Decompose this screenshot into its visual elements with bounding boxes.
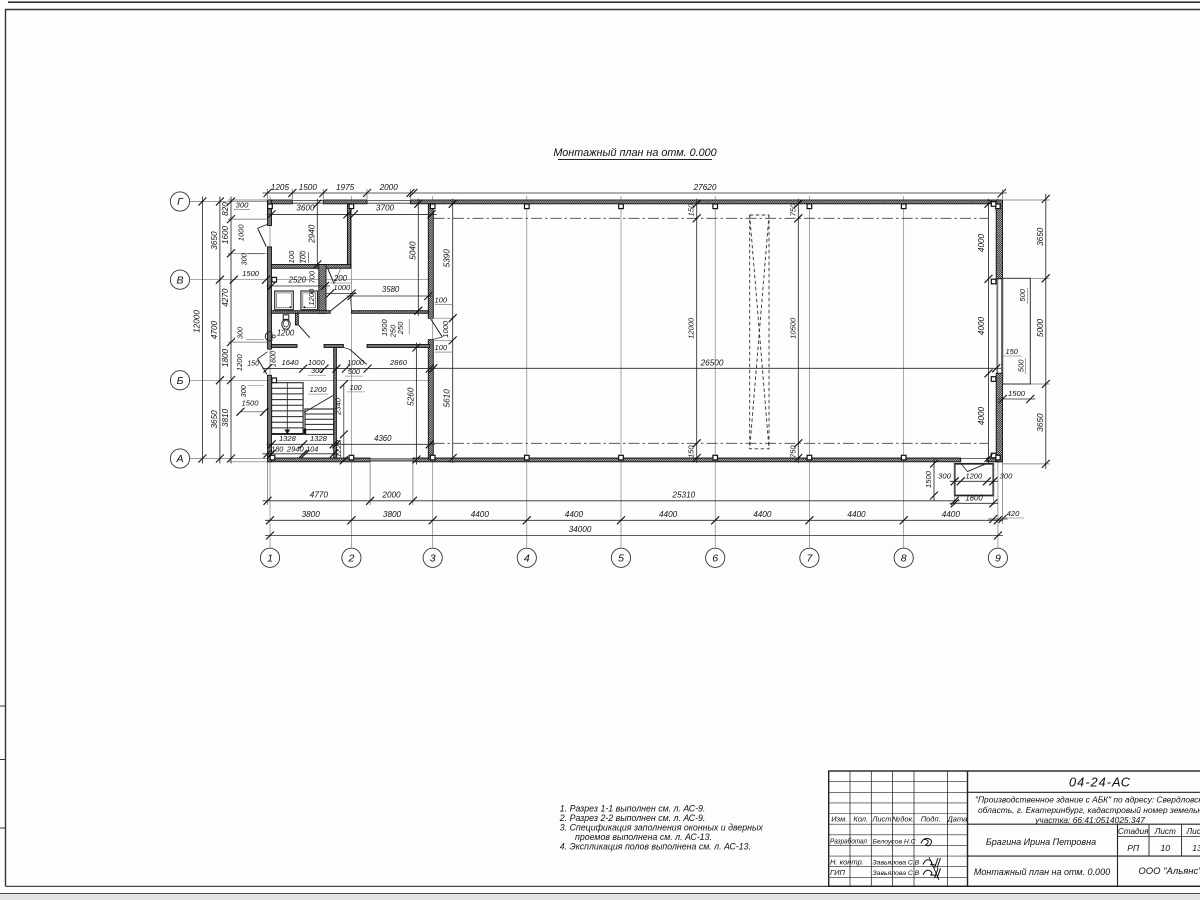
svg-text:200: 200 (333, 274, 348, 283)
svg-text:180: 180 (271, 444, 283, 453)
svg-text:420: 420 (1007, 509, 1020, 518)
svg-text:"Производственное здание с АБК: "Производственное здание с АБК" по адрес… (975, 795, 1200, 805)
svg-text:500: 500 (1018, 288, 1027, 301)
svg-text:4700: 4700 (210, 320, 219, 339)
svg-text:Лист: Лист (1185, 827, 1200, 836)
svg-text:750: 750 (788, 203, 797, 216)
svg-text:150: 150 (247, 358, 259, 367)
svg-text:Кол.: Кол. (853, 815, 868, 824)
svg-text:А: А (175, 453, 183, 465)
svg-text:4770: 4770 (310, 490, 329, 499)
svg-text:РП: РП (1127, 843, 1140, 853)
svg-text:6: 6 (712, 552, 718, 564)
svg-text:Завьялова С.В: Завьялова С.В (873, 860, 920, 867)
svg-text:300: 300 (938, 472, 951, 481)
svg-text:1500: 1500 (242, 398, 260, 407)
svg-text:34000: 34000 (569, 525, 592, 534)
svg-text:1800: 1800 (221, 348, 230, 367)
svg-text:300: 300 (239, 385, 248, 397)
svg-text:1500: 1500 (242, 269, 260, 278)
svg-text:1600: 1600 (269, 351, 278, 367)
svg-text:150: 150 (687, 445, 696, 458)
svg-text:4400: 4400 (565, 510, 584, 519)
svg-text:2940: 2940 (286, 444, 305, 453)
svg-text:Лист: Лист (871, 815, 891, 824)
svg-text:3650: 3650 (210, 231, 219, 250)
svg-text:10500: 10500 (788, 317, 797, 339)
svg-text:4000: 4000 (977, 406, 986, 425)
svg-text:№док.: №док. (892, 815, 914, 824)
svg-text:область, г. Екатеринбург, када: область, г. Екатеринбург, кадастровый но… (978, 805, 1200, 815)
svg-text:2. Разрез 2-2 выполнен см. л.: 2. Разрез 2-2 выполнен см. л. АС-9. (559, 813, 706, 823)
svg-text:4000: 4000 (977, 233, 986, 252)
svg-text:150: 150 (1005, 347, 1018, 356)
svg-text:3700: 3700 (376, 203, 395, 212)
svg-text:100: 100 (298, 250, 307, 263)
svg-text:4400: 4400 (659, 510, 678, 519)
svg-text:500: 500 (348, 367, 360, 376)
svg-text:ООО "Альянс": ООО "Альянс" (1138, 866, 1200, 877)
svg-text:Брагина Ирина Петровна: Брагина Ирина Петровна (986, 837, 1096, 847)
svg-text:Подп.: Подп. (921, 815, 941, 824)
svg-text:2000: 2000 (381, 490, 401, 499)
svg-text:3800: 3800 (383, 510, 402, 519)
svg-text:1800: 1800 (965, 494, 983, 503)
svg-text:1. Разрез 1-1 выполнен см. л.: 1. Разрез 1-1 выполнен см. л. АС-9. (560, 803, 706, 813)
svg-text:1640: 1640 (282, 358, 300, 367)
svg-text:Монтажный план на отм. 0.000: Монтажный план на отм. 0.000 (553, 147, 716, 159)
svg-text:Разработал: Разработал (830, 836, 868, 845)
svg-text:1200: 1200 (307, 288, 316, 306)
svg-text:3650: 3650 (210, 410, 219, 429)
svg-text:100: 100 (287, 250, 296, 263)
svg-text:1500: 1500 (1008, 389, 1026, 398)
svg-text:2: 2 (347, 552, 354, 564)
svg-text:100: 100 (350, 383, 362, 392)
svg-text:27620: 27620 (693, 183, 717, 192)
svg-text:5000: 5000 (1036, 318, 1045, 337)
svg-text:1975: 1975 (336, 183, 355, 192)
svg-text:1200: 1200 (965, 472, 983, 481)
svg-text:3650: 3650 (1036, 413, 1045, 432)
svg-text:3580: 3580 (382, 285, 400, 294)
svg-text:3: 3 (430, 552, 436, 564)
svg-text:Дата: Дата (947, 815, 968, 824)
svg-text:13: 13 (1192, 843, 1200, 853)
svg-text:Завьялова С.В: Завьялова С.В (873, 870, 920, 877)
svg-text:1200: 1200 (310, 385, 328, 394)
svg-text:5: 5 (618, 552, 624, 564)
svg-text:2860: 2860 (389, 358, 408, 367)
svg-text:4400: 4400 (753, 510, 772, 519)
svg-text:1328: 1328 (310, 434, 328, 443)
svg-text:300: 300 (239, 253, 248, 265)
svg-text:8: 8 (901, 552, 907, 564)
svg-text:Стадия: Стадия (1118, 827, 1149, 836)
svg-text:ГИП: ГИП (830, 868, 845, 877)
svg-text:300: 300 (236, 200, 249, 209)
svg-text:300: 300 (311, 366, 323, 375)
svg-text:4400: 4400 (942, 510, 961, 519)
svg-text:4: 4 (524, 552, 530, 564)
svg-text:1000: 1000 (347, 358, 365, 367)
svg-text:4400: 4400 (471, 510, 490, 519)
svg-text:700: 700 (308, 270, 317, 283)
svg-text:3600: 3600 (296, 203, 315, 212)
svg-text:1328: 1328 (279, 434, 297, 443)
svg-text:Белоусов Н.С: Белоусов Н.С (873, 838, 916, 845)
svg-text:2340: 2340 (333, 397, 342, 416)
svg-text:12000: 12000 (687, 317, 696, 339)
svg-text:500: 500 (1016, 359, 1025, 372)
svg-text:3800: 3800 (302, 510, 321, 519)
svg-text:104: 104 (306, 444, 318, 453)
svg-text:5610: 5610 (443, 389, 452, 408)
svg-text:10: 10 (1161, 843, 1171, 853)
svg-text:4360: 4360 (374, 434, 392, 443)
svg-text:1600: 1600 (221, 225, 230, 244)
svg-text:12000: 12000 (192, 310, 201, 333)
svg-text:проемов выполнена см. л. АС-13: проемов выполнена см. л. АС-13. (575, 832, 712, 842)
svg-text:1000: 1000 (237, 224, 246, 242)
svg-text:300: 300 (1000, 472, 1013, 481)
svg-text:3650: 3650 (1036, 227, 1045, 246)
svg-text:1500: 1500 (299, 183, 318, 192)
svg-text:820: 820 (221, 202, 230, 216)
svg-text:1200: 1200 (235, 353, 244, 371)
svg-text:250: 250 (396, 321, 405, 335)
svg-text:1500: 1500 (924, 470, 933, 488)
svg-text:150: 150 (687, 203, 696, 216)
svg-text:4400: 4400 (847, 510, 866, 519)
svg-text:4. Экспликация полов выполнена: 4. Экспликация полов выполнена см. л. АС… (560, 842, 751, 852)
svg-text:Б: Б (177, 375, 184, 387)
svg-text:2520: 2520 (288, 276, 307, 285)
svg-text:750: 750 (788, 445, 797, 458)
svg-text:Монтажный план на отм. 0.000: Монтажный план на отм. 0.000 (974, 867, 1110, 877)
svg-text:3810: 3810 (221, 408, 230, 427)
svg-text:26500: 26500 (700, 358, 724, 367)
svg-text:04-24-АС: 04-24-АС (1069, 775, 1131, 790)
svg-text:1200: 1200 (277, 329, 295, 338)
svg-text:9: 9 (995, 552, 1001, 564)
svg-text:участка: 66:41:0514025:347: участка: 66:41:0514025:347 (1034, 815, 1145, 825)
svg-text:Лист: Лист (1154, 827, 1176, 836)
svg-text:5040: 5040 (408, 241, 417, 260)
svg-text:300: 300 (236, 327, 245, 339)
svg-text:1: 1 (267, 552, 273, 564)
svg-text:1000: 1000 (441, 320, 450, 338)
svg-text:Н. контр.: Н. контр. (830, 858, 864, 867)
svg-text:100: 100 (434, 295, 447, 304)
svg-text:4000: 4000 (977, 316, 986, 335)
svg-text:2940: 2940 (307, 224, 316, 244)
svg-text:1205: 1205 (271, 183, 290, 192)
svg-text:Изм.: Изм. (831, 815, 847, 824)
svg-text:2000: 2000 (379, 183, 399, 192)
svg-text:В: В (176, 274, 183, 286)
svg-text:1000: 1000 (333, 283, 351, 292)
svg-text:4270: 4270 (221, 288, 230, 307)
svg-text:5260: 5260 (406, 387, 415, 406)
svg-text:100: 100 (434, 343, 447, 352)
svg-text:3. Спецификация заполнения око: 3. Спецификация заполнения оконных и две… (560, 823, 764, 833)
svg-text:25310: 25310 (671, 490, 695, 499)
svg-text:5390: 5390 (443, 249, 452, 268)
